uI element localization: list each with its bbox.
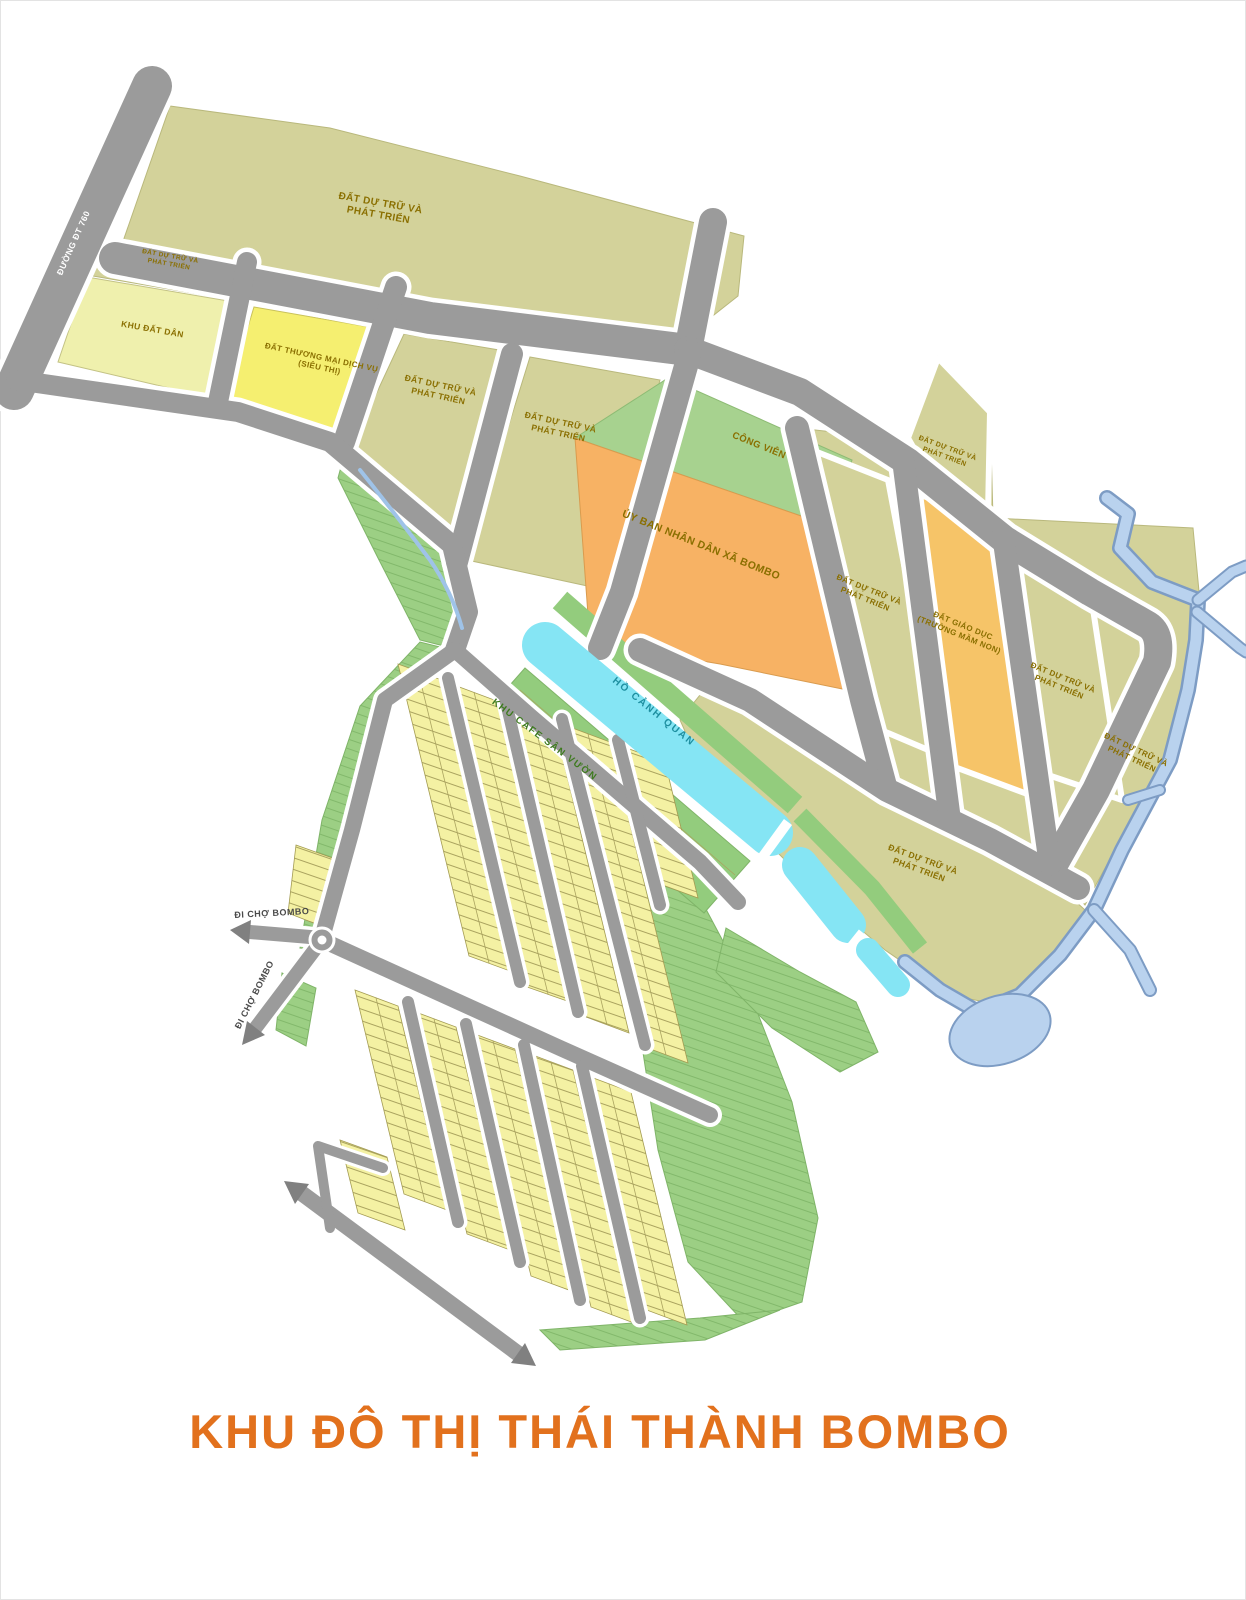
map-canvas: ĐƯỜNG ĐT 760 ĐẤT DỰ TRỮ VÀPHÁT TRIỂN ĐẤT… [0, 0, 1246, 1600]
page-title: KHU ĐÔ THỊ THÁI THÀNH BOMBO [189, 1405, 1011, 1458]
master-plan-map: ĐƯỜNG ĐT 760 ĐẤT DỰ TRỮ VÀPHÁT TRIỂN ĐẤT… [0, 0, 1246, 1600]
roundabout [310, 928, 334, 952]
